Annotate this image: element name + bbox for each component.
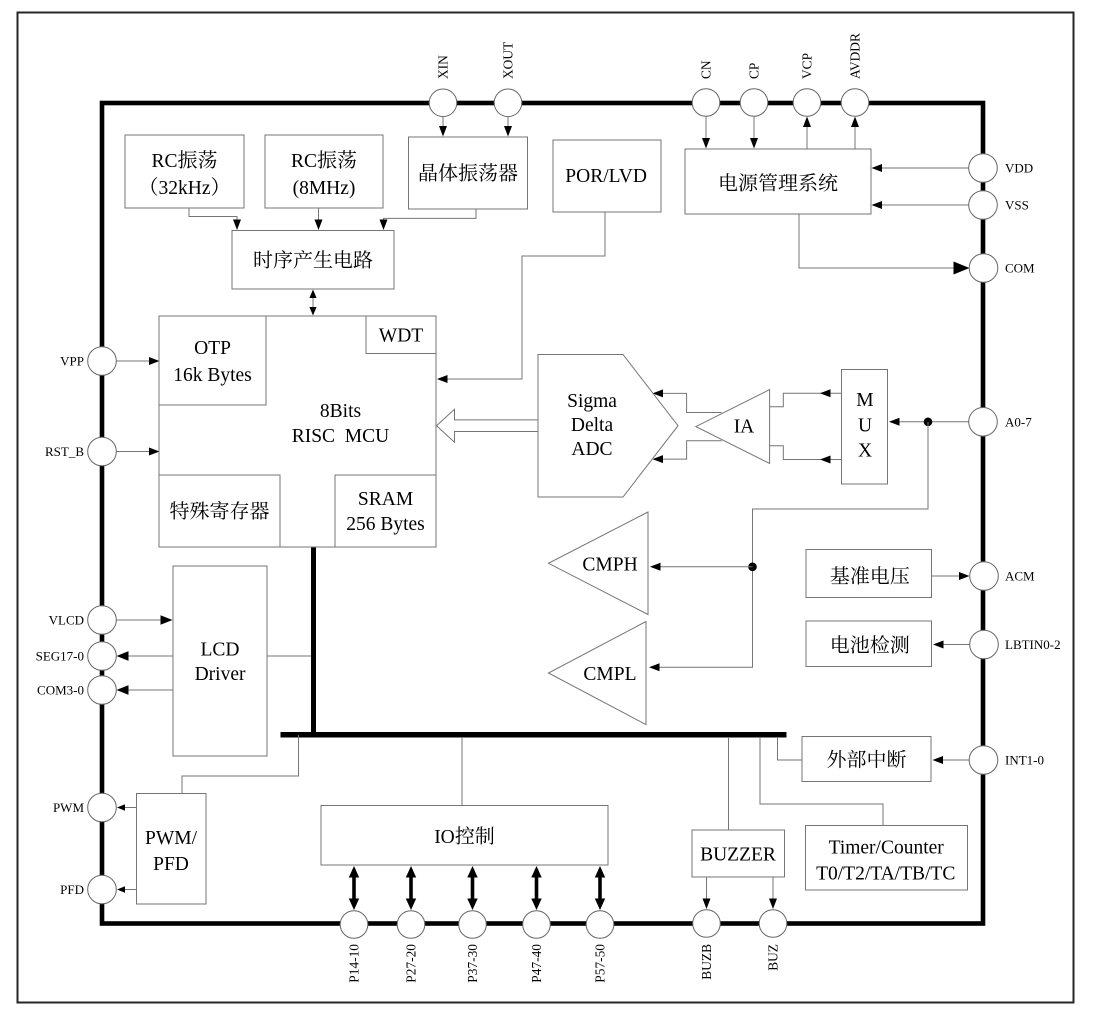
- svg-text:VDD: VDD: [1005, 161, 1033, 176]
- svg-text:P57-50: P57-50: [593, 944, 608, 983]
- svg-text:P27-20: P27-20: [404, 944, 419, 983]
- svg-text:PWM/: PWM/: [145, 828, 198, 849]
- svg-text:IO: IO: [434, 827, 455, 848]
- svg-text:BUZB: BUZB: [699, 944, 714, 980]
- svg-text:CMPL: CMPL: [583, 664, 636, 685]
- svg-text:VLCD: VLCD: [49, 613, 84, 628]
- svg-text:VCP: VCP: [800, 53, 815, 79]
- svg-text:RISC MCU: RISC MCU: [292, 426, 390, 447]
- svg-text:AVDDR: AVDDR: [848, 33, 863, 79]
- svg-text:XIN: XIN: [436, 55, 451, 79]
- svg-text:Sigma: Sigma: [567, 391, 617, 412]
- svg-text:CP: CP: [747, 63, 762, 79]
- svg-text:X: X: [858, 441, 872, 462]
- svg-text:(8MHz): (8MHz): [293, 178, 356, 199]
- svg-text:COM3-0: COM3-0: [37, 683, 84, 698]
- svg-text:16k Bytes: 16k Bytes: [173, 365, 252, 386]
- svg-text:XOUT: XOUT: [501, 42, 516, 79]
- svg-text:BUZZER: BUZZER: [700, 845, 776, 866]
- svg-text:P14-10: P14-10: [347, 944, 362, 983]
- svg-text:M: M: [856, 390, 873, 411]
- svg-text:Delta: Delta: [571, 415, 614, 436]
- svg-text:BUZ: BUZ: [766, 944, 781, 971]
- svg-text:U: U: [858, 416, 872, 437]
- svg-text:CN: CN: [699, 60, 714, 79]
- svg-text:PFD: PFD: [60, 882, 84, 897]
- svg-text:A0-7: A0-7: [1005, 414, 1032, 429]
- svg-text:COM: COM: [1005, 261, 1035, 276]
- svg-text:VSS: VSS: [1005, 198, 1029, 213]
- svg-text:Timer/Counter: Timer/Counter: [829, 838, 945, 859]
- svg-text:LCD: LCD: [201, 640, 240, 661]
- svg-text:RST_B: RST_B: [45, 444, 84, 459]
- svg-text:IA: IA: [734, 417, 755, 438]
- svg-text:ACM: ACM: [1005, 569, 1035, 584]
- svg-text:SEG17-0: SEG17-0: [36, 649, 84, 664]
- svg-text:Driver: Driver: [195, 664, 246, 685]
- svg-text:VPP: VPP: [60, 354, 84, 369]
- svg-text:32kHz: 32kHz: [159, 178, 211, 199]
- svg-text:T0/T2/TA/TB/TC: T0/T2/TA/TB/TC: [816, 864, 955, 885]
- svg-text:WDT: WDT: [379, 326, 423, 347]
- svg-text:SRAM: SRAM: [358, 489, 413, 510]
- svg-text:POR/LVD: POR/LVD: [565, 166, 647, 187]
- svg-text:ADC: ADC: [571, 439, 612, 460]
- svg-text:PWM: PWM: [53, 800, 85, 815]
- svg-text:PFD: PFD: [153, 854, 189, 875]
- svg-text:OTP: OTP: [194, 338, 231, 359]
- svg-text:P37-30: P37-30: [465, 944, 480, 983]
- svg-text:INT1-0: INT1-0: [1005, 753, 1044, 768]
- svg-text:RC: RC: [152, 151, 178, 172]
- svg-text:LBTIN0-2: LBTIN0-2: [1005, 637, 1061, 652]
- svg-text:P47-40: P47-40: [529, 944, 544, 983]
- svg-text:256 Bytes: 256 Bytes: [346, 514, 425, 535]
- svg-text:CMPH: CMPH: [582, 555, 637, 576]
- svg-text:8Bits: 8Bits: [320, 401, 361, 422]
- svg-text:RC: RC: [291, 151, 317, 172]
